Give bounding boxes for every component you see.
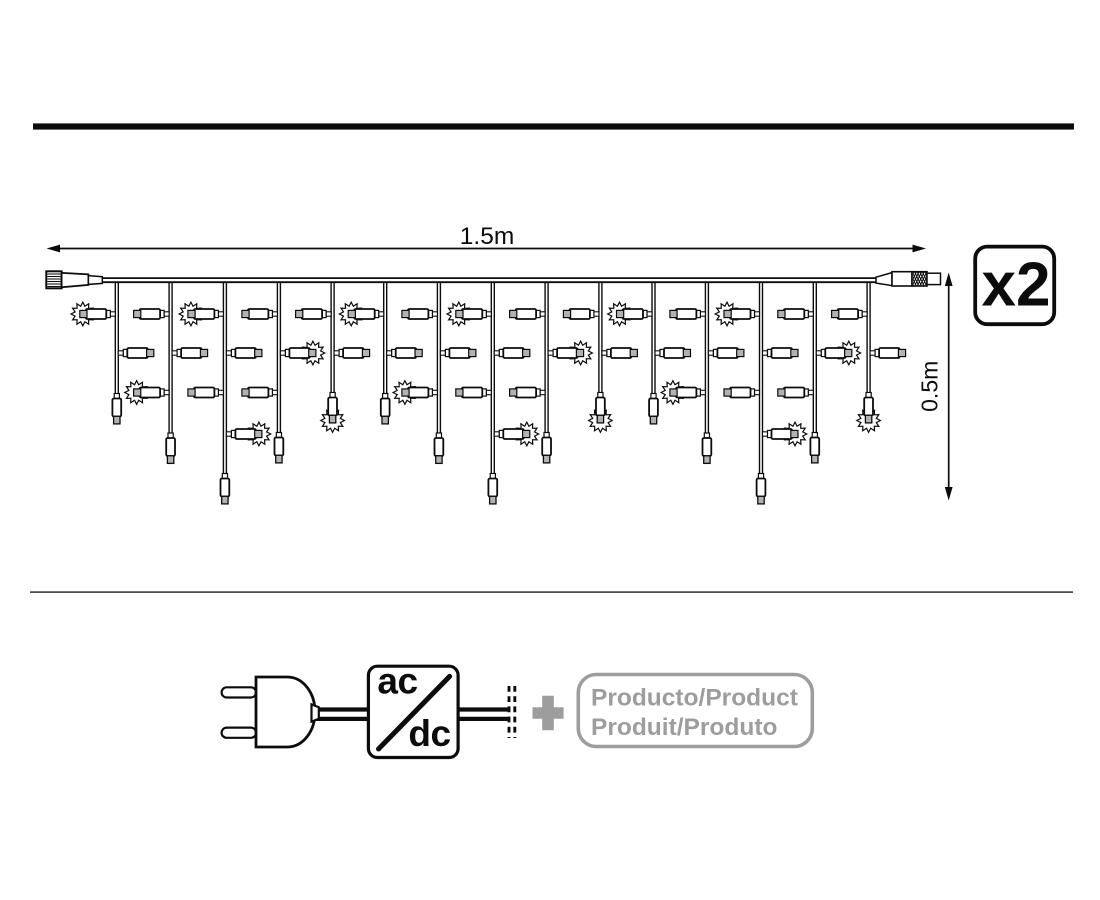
svg-text:Producto/Product: Producto/Product	[591, 685, 798, 712]
svg-text:Produit/Produto: Produit/Produto	[591, 714, 777, 741]
svg-text:x2: x2	[982, 251, 1051, 320]
svg-text:ac: ac	[377, 661, 417, 702]
svg-text:dc: dc	[408, 713, 450, 754]
svg-text:1.5m: 1.5m	[460, 223, 514, 250]
svg-text:0.5m: 0.5m	[917, 361, 943, 412]
